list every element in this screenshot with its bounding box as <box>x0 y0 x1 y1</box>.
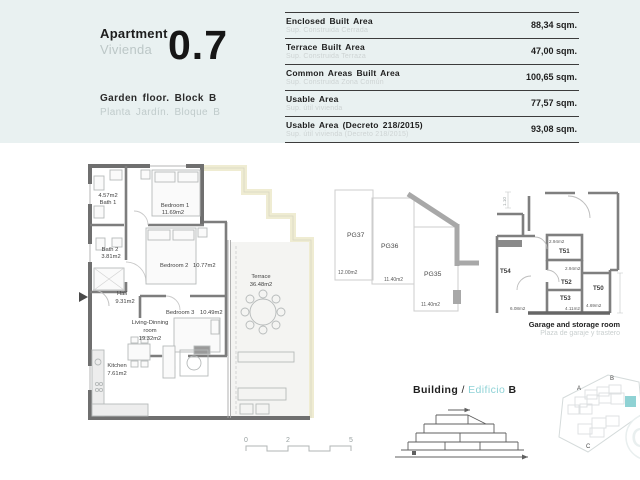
room-label-kitchen: Kitchen <box>107 363 126 369</box>
scale-tick-0: 0 <box>244 437 248 444</box>
building-label-es: Edificio <box>468 384 505 396</box>
terrace-floor <box>230 242 309 417</box>
site-plan: A B C G <box>559 375 640 460</box>
site-boundary <box>559 375 640 452</box>
scale-tick-2: 2 <box>286 437 290 444</box>
room-label-terrace-area: 36.48m2 <box>250 282 273 288</box>
room-label-bedroom3: Bedroom 3 <box>166 310 194 316</box>
room-label-living-2: room <box>143 328 156 334</box>
room-label-bedroom2: Bedroom 2 <box>160 263 188 269</box>
room-label-hall: Hall <box>117 291 127 297</box>
storage-caption-en: Garage and storage room <box>488 320 620 329</box>
site-highlight-unit <box>625 396 636 407</box>
t52-label: T52 <box>561 279 572 286</box>
storage-plan: 1.10 T54 6.08m2 2.94m2 T51 2.94m2 T52 T5… <box>497 192 623 313</box>
room-label-bedroom2-area: 10.77m2 <box>193 263 216 269</box>
storage-dim-text: 1.10 <box>502 197 507 206</box>
t52-area: 2.94m2 <box>565 266 581 271</box>
building-title: Building / Edificio B <box>413 384 517 396</box>
pg35-area: 11.40m2 <box>421 302 440 308</box>
t50-label: T50 <box>593 285 604 292</box>
pg36-area: 11.40m2 <box>384 277 403 283</box>
room-label-living-1: Living-Dinning <box>132 320 169 326</box>
t50-area: 4.69m2 <box>586 303 602 308</box>
storage-caption: Garage and storage room Plaza de garaje … <box>488 320 620 337</box>
building-block-letter: B <box>505 384 516 396</box>
t54-area: 6.08m2 <box>510 306 526 311</box>
scale-bar-line <box>246 446 351 451</box>
room-label-kitchen-area: 7.61m2 <box>107 371 126 377</box>
t51-label: T51 <box>559 248 570 255</box>
building-elevation-sketch <box>395 408 528 460</box>
garage-pillar <box>453 290 461 304</box>
room-label-bedroom3-area: 10.49m2 <box>200 310 223 316</box>
room-label-bedroom1: Bedroom 1 <box>161 203 189 209</box>
scale-bar: 0 2 5 <box>244 437 353 451</box>
watermark-g: G <box>631 422 640 453</box>
garage-wall <box>408 194 479 266</box>
building-label-en: Building <box>413 384 458 396</box>
room-label-bath1: Bath 1 <box>100 200 117 206</box>
site-block-a: A <box>577 386 581 392</box>
site-buildings <box>568 385 624 437</box>
t54-label: T54 <box>500 268 511 275</box>
entrance-arrow-icon <box>79 292 88 302</box>
pg35-label: PG35 <box>424 271 442 278</box>
parking-space-pg36 <box>372 198 414 284</box>
building-separator: / <box>458 384 468 396</box>
pg37-area: 12.00m2 <box>338 270 358 276</box>
storage-shelf <box>498 240 522 247</box>
room-label-bath2: Bath 2 <box>102 247 119 253</box>
glass-facade <box>228 240 231 418</box>
room-label-bath2-area: 3.81m2 <box>101 254 120 260</box>
scale-tick-5: 5 <box>349 437 353 444</box>
t53-label: T53 <box>560 295 571 302</box>
site-block-b: B <box>610 376 614 382</box>
storage-caption-es: Plaza de garaje y trastero <box>488 330 620 337</box>
t51-area: 2.94m2 <box>549 239 565 244</box>
floor-plan: 4.57m2 Bath 1 Bedroom 1 11.69m2 Bath 2 3… <box>79 164 311 420</box>
plans-canvas: 4.57m2 Bath 1 Bedroom 1 11.69m2 Bath 2 3… <box>0 0 640 480</box>
room-label-terrace: Terrace <box>251 274 270 280</box>
t53-area: 4.11m2 <box>565 306 580 311</box>
pg37-label: PG37 <box>347 232 365 239</box>
site-block-c: C <box>586 444 591 450</box>
room-label-bedroom1-area: 11.69m2 <box>162 210 184 216</box>
parking-space-pg35 <box>414 227 458 311</box>
room-label-living-area: 19.32m2 <box>139 336 162 342</box>
parking-plan: PG37 12.00m2 PG36 11.40m2 PG35 11.40m2 <box>335 190 479 311</box>
apartment-sheet: Apartment Vivienda 0.7 Garden floor. Blo… <box>0 0 640 480</box>
room-label-hall-area: 9.31m2 <box>115 299 134 305</box>
pg36-label: PG36 <box>381 243 399 250</box>
room-label-bath1-area: 4.57m2 <box>98 193 117 199</box>
